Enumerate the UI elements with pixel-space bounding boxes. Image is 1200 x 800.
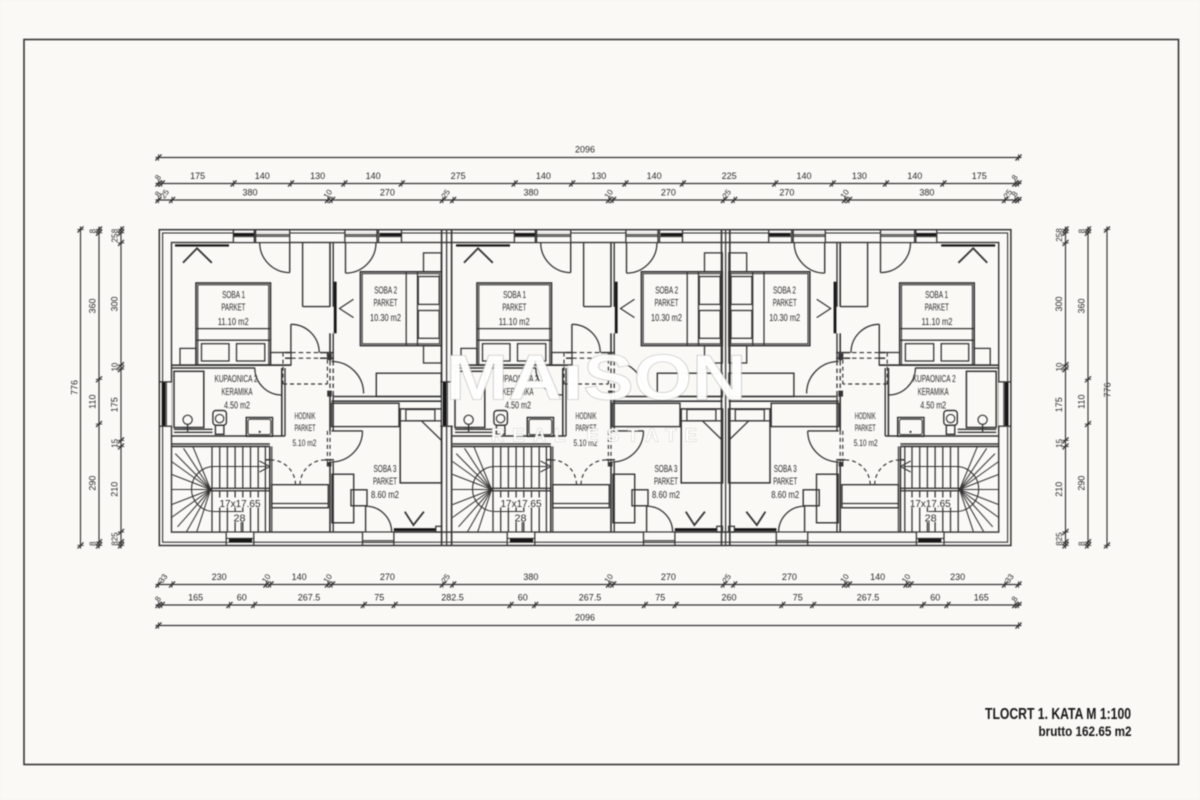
svg-text:KUPAONICA 2: KUPAONICA 2 [913, 374, 956, 385]
svg-text:11.10 m2: 11.10 m2 [499, 316, 530, 328]
svg-text:8.60 m2: 8.60 m2 [371, 489, 399, 501]
svg-text:SOBA 2: SOBA 2 [655, 285, 678, 297]
svg-text:776: 776 [1103, 382, 1113, 397]
svg-text:75: 75 [793, 593, 803, 603]
svg-text:KERAMIKA: KERAMIKA [918, 387, 949, 398]
svg-text:110: 110 [88, 395, 98, 409]
svg-text:140: 140 [796, 171, 811, 181]
svg-text:10.30 m2: 10.30 m2 [769, 312, 800, 324]
svg-text:5.10 m2: 5.10 m2 [293, 438, 317, 449]
svg-text:140: 140 [536, 171, 551, 181]
svg-text:10.30 m2: 10.30 m2 [651, 312, 682, 324]
svg-text:TLOCRT 1. KATA M 1:100: TLOCRT 1. KATA M 1:100 [985, 706, 1131, 723]
svg-text:8: 8 [89, 541, 98, 546]
svg-text:8.60 m2: 8.60 m2 [652, 489, 680, 501]
svg-text:15: 15 [111, 438, 120, 447]
svg-text:380: 380 [242, 188, 257, 198]
svg-text:60: 60 [930, 593, 940, 603]
svg-text:140: 140 [907, 171, 922, 181]
svg-text:11.10 m2: 11.10 m2 [218, 316, 249, 328]
svg-text:SOBA 3: SOBA 3 [655, 463, 678, 475]
svg-text:282.5: 282.5 [441, 593, 464, 603]
svg-text:776: 776 [70, 380, 80, 395]
svg-text:28: 28 [234, 514, 246, 525]
svg-text:SOBA 1: SOBA 1 [222, 289, 245, 301]
svg-text:28: 28 [925, 514, 937, 525]
svg-text:HODNIK: HODNIK [295, 411, 316, 422]
svg-text:300: 300 [110, 296, 120, 311]
svg-text:PARKET: PARKET [655, 297, 679, 309]
svg-text:270: 270 [661, 188, 676, 198]
svg-text:267.5: 267.5 [579, 593, 602, 603]
svg-text:130: 130 [310, 171, 325, 181]
svg-text:17x17.65: 17x17.65 [910, 499, 951, 510]
svg-text:8: 8 [89, 228, 98, 233]
svg-text:brutto 162.65 m2: brutto 162.65 m2 [1039, 723, 1132, 739]
svg-text:825: 825 [111, 532, 120, 546]
svg-text:PARKET: PARKET [654, 476, 678, 488]
svg-text:175: 175 [972, 171, 987, 181]
svg-text:175: 175 [190, 171, 205, 181]
svg-text:140: 140 [366, 171, 381, 181]
svg-text:8: 8 [1078, 228, 1087, 233]
svg-text:210: 210 [110, 482, 120, 497]
svg-text:PARKET: PARKET [373, 476, 397, 488]
svg-text:270: 270 [782, 572, 797, 582]
svg-text:SOBA 3: SOBA 3 [774, 463, 797, 475]
svg-text:SOBA 1: SOBA 1 [503, 289, 526, 301]
svg-text:17x17.65: 17x17.65 [501, 499, 542, 510]
svg-text:PARKET: PARKET [221, 301, 245, 313]
svg-text:SOBA 3: SOBA 3 [374, 463, 397, 475]
svg-text:380: 380 [919, 188, 934, 198]
svg-text:25: 25 [111, 233, 120, 242]
svg-text:380: 380 [523, 572, 538, 582]
svg-text:260: 260 [721, 593, 736, 603]
svg-text:825: 825 [1055, 532, 1064, 546]
svg-text:175: 175 [1054, 397, 1064, 412]
svg-text:KUPAONICA 2: KUPAONICA 2 [215, 374, 258, 385]
svg-text:PARKET: PARKET [374, 297, 398, 309]
svg-text:300: 300 [1054, 296, 1064, 311]
svg-text:8.60 m2: 8.60 m2 [771, 489, 799, 501]
svg-text:SOBA 2: SOBA 2 [773, 285, 796, 297]
svg-text:290: 290 [88, 476, 98, 491]
svg-text:17x17.65: 17x17.65 [220, 499, 261, 510]
svg-text:175: 175 [110, 397, 120, 412]
svg-text:360: 360 [88, 298, 98, 313]
svg-text:10: 10 [1055, 362, 1064, 371]
svg-text:10: 10 [111, 362, 120, 371]
svg-text:140: 140 [255, 171, 270, 181]
svg-text:8: 8 [1078, 541, 1087, 546]
svg-text:230: 230 [950, 572, 965, 582]
svg-text:75: 75 [374, 593, 384, 603]
svg-text:MAıSON: MAıSON [446, 342, 747, 414]
svg-text:11.10 m2: 11.10 m2 [922, 316, 953, 328]
svg-text:270: 270 [779, 188, 794, 198]
svg-text:140: 140 [647, 171, 662, 181]
svg-text:8: 8 [111, 228, 120, 233]
svg-text:110: 110 [1077, 395, 1087, 409]
svg-text:360: 360 [1077, 298, 1087, 313]
svg-text:HODNIK: HODNIK [855, 411, 876, 422]
svg-text:130: 130 [591, 171, 606, 181]
svg-text:10.30 m2: 10.30 m2 [370, 312, 401, 324]
svg-text:267.5: 267.5 [857, 593, 880, 603]
svg-text:140: 140 [292, 572, 307, 582]
svg-text:PARKET: PARKET [502, 301, 526, 313]
svg-text:2096: 2096 [575, 145, 595, 155]
svg-text:5.10 m2: 5.10 m2 [854, 438, 878, 449]
svg-text:225: 225 [722, 171, 737, 181]
svg-text:28: 28 [515, 514, 527, 525]
svg-text:275: 275 [451, 171, 466, 181]
svg-text:PARKET: PARKET [773, 297, 797, 309]
svg-text:PARKET: PARKET [855, 423, 876, 434]
svg-text:SOBA 1: SOBA 1 [925, 289, 948, 301]
svg-text:258: 258 [1055, 228, 1064, 242]
svg-text:PARKET: PARKET [925, 301, 949, 313]
svg-text:230: 230 [212, 572, 227, 582]
svg-text:270: 270 [661, 572, 676, 582]
svg-text:165: 165 [188, 593, 203, 603]
svg-text:267.5: 267.5 [298, 593, 321, 603]
svg-text:60: 60 [518, 593, 528, 603]
svg-text:380: 380 [523, 188, 538, 198]
svg-text:60: 60 [237, 593, 247, 603]
svg-text:270: 270 [380, 572, 395, 582]
svg-text:PARKET: PARKET [773, 476, 797, 488]
svg-text:REAL ESTATE: REAL ESTATE [491, 425, 697, 446]
svg-text:2096: 2096 [575, 613, 595, 623]
svg-text:4.50 m2: 4.50 m2 [920, 400, 946, 411]
svg-text:PARKET: PARKET [295, 423, 316, 434]
svg-text:210: 210 [1054, 482, 1064, 497]
svg-text:165: 165 [974, 593, 989, 603]
svg-text:SOBA 2: SOBA 2 [374, 285, 397, 297]
svg-text:140: 140 [870, 572, 885, 582]
svg-text:4.50 m2: 4.50 m2 [224, 400, 250, 411]
svg-text:75: 75 [655, 593, 665, 603]
svg-text:130: 130 [852, 171, 867, 181]
svg-text:KERAMIKA: KERAMIKA [222, 387, 253, 398]
svg-text:15: 15 [1055, 438, 1064, 447]
svg-text:270: 270 [380, 188, 395, 198]
svg-text:290: 290 [1077, 476, 1087, 491]
